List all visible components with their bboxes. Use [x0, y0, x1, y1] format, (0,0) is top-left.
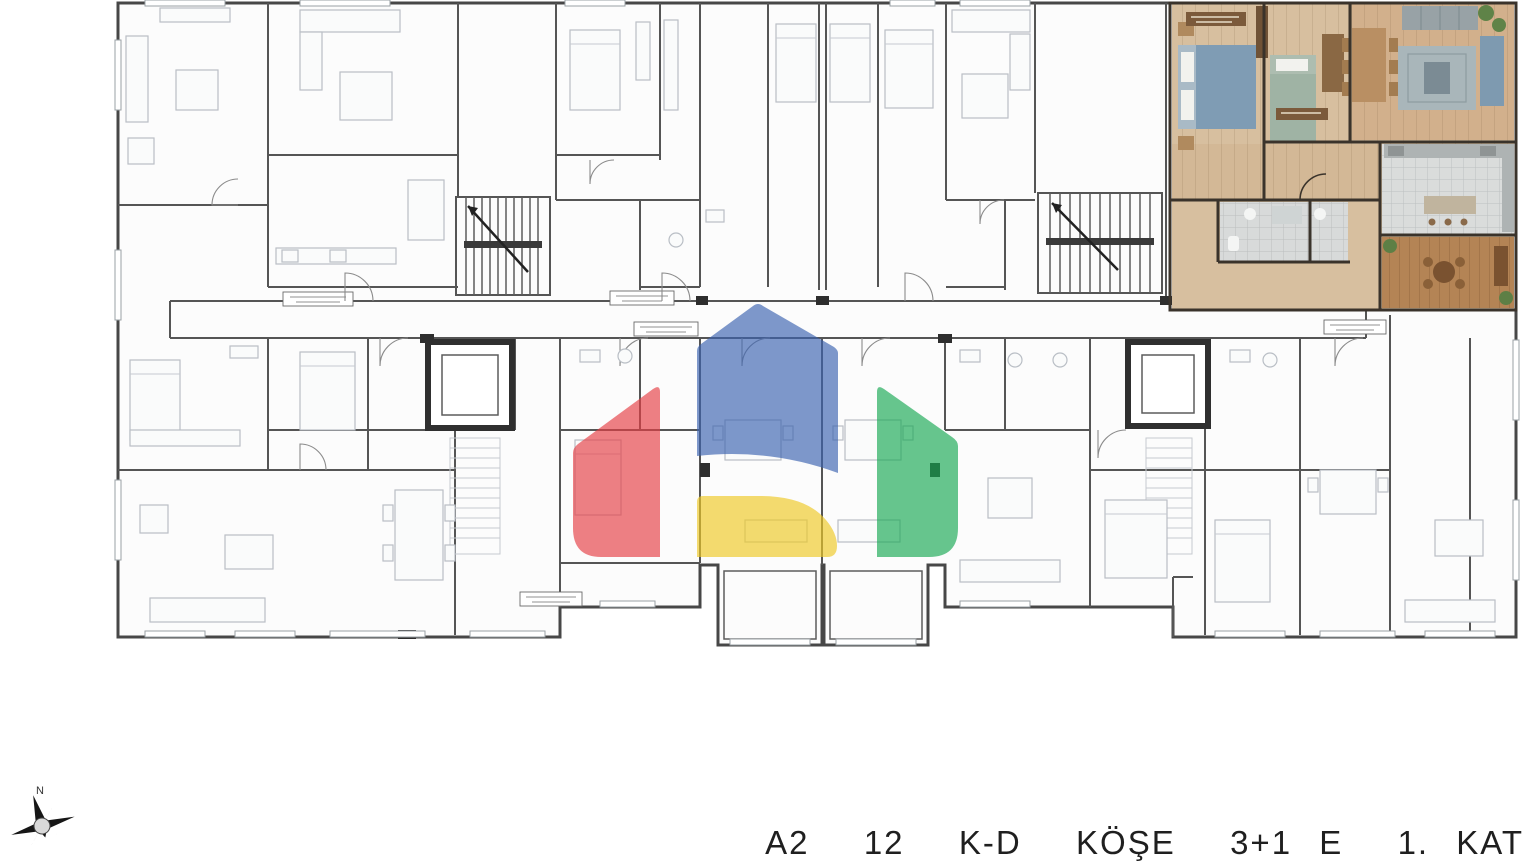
- elevator-right: [1128, 342, 1208, 426]
- highlighted-unit: [1170, 3, 1516, 310]
- plan-caption: A2 12 K-D KÖŞE 3+1 E 1. KAT: [765, 824, 1524, 862]
- north-label: N: [36, 785, 44, 797]
- floorplan-drawing: N: [0, 0, 1536, 864]
- elevator-left: [428, 342, 512, 428]
- floorplan-page: N A2 12 K-D KÖŞE 3+1 E 1. KAT: [0, 0, 1536, 864]
- compass-rose: N: [2, 785, 79, 852]
